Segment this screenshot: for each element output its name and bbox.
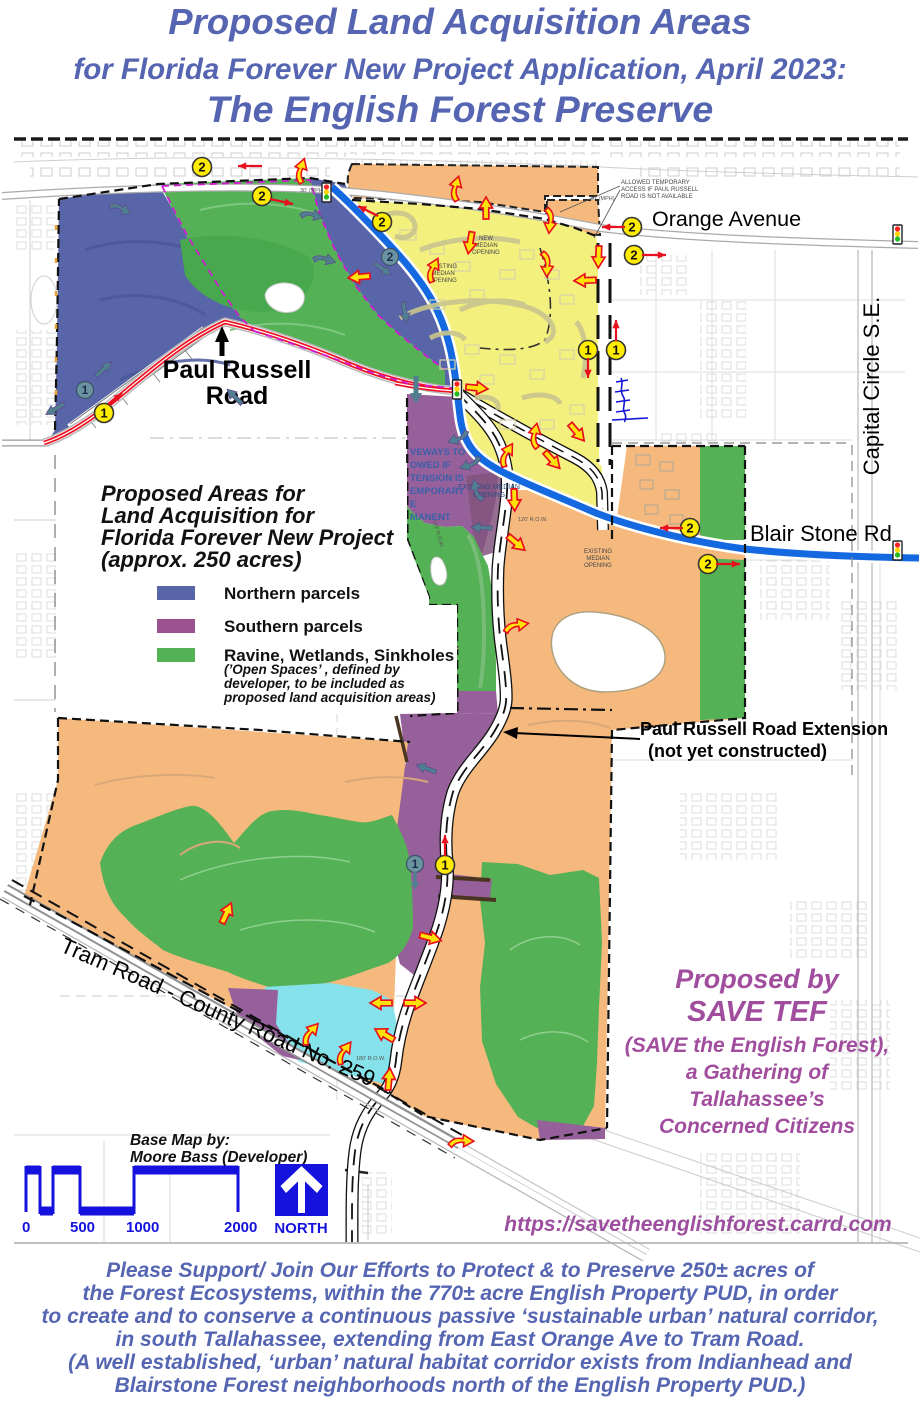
svg-text:2: 2 xyxy=(628,220,635,235)
svg-text:2: 2 xyxy=(258,189,265,204)
svg-text:1: 1 xyxy=(584,343,591,358)
svg-text:1: 1 xyxy=(612,343,619,358)
svg-text:a Gathering of: a Gathering of xyxy=(686,1061,830,1084)
svg-text:(approx. 250 acres): (approx. 250 acres) xyxy=(101,547,302,572)
svg-text:ACCESS IF PAUL RUSSELL: ACCESS IF PAUL RUSSELL xyxy=(621,187,699,193)
svg-text:MEDIAN: MEDIAN xyxy=(586,556,609,562)
svg-text:Concerned Citizens: Concerned Citizens xyxy=(659,1115,855,1138)
svg-text:Southern parcels: Southern parcels xyxy=(224,617,363,636)
svg-text:OPENING: OPENING xyxy=(472,250,500,256)
svg-text:OWED IF: OWED IF xyxy=(410,460,451,471)
svg-text:1: 1 xyxy=(82,383,89,397)
svg-text:2: 2 xyxy=(630,248,637,263)
svg-text:1: 1 xyxy=(441,858,448,873)
svg-text:TENSION IS: TENSION IS xyxy=(410,473,464,484)
svg-text:Blair Stone Rd: Blair Stone Rd xyxy=(750,521,892,546)
svg-text:(not yet constructed): (not yet constructed) xyxy=(648,741,827,761)
svg-text:120' R.O.W.: 120' R.O.W. xyxy=(518,517,548,523)
svg-text:developer, to be included as: developer, to be included as xyxy=(224,676,405,691)
svg-text:Northern parcels: Northern parcels xyxy=(224,584,360,603)
svg-text:180' R.O.W.: 180' R.O.W. xyxy=(356,1056,386,1062)
svg-text:ROAD IS NOT AVAILABLE: ROAD IS NOT AVAILABLE xyxy=(621,194,693,200)
svg-text:Capital Circle S.E.: Capital Circle S.E. xyxy=(859,297,884,476)
svg-text:2: 2 xyxy=(686,521,693,536)
svg-text:1000: 1000 xyxy=(126,1219,159,1236)
svg-text:SAVE TEF: SAVE TEF xyxy=(687,996,828,1028)
svg-text:MEDIAN: MEDIAN xyxy=(431,271,454,277)
svg-text:NORTH: NORTH xyxy=(274,1220,327,1237)
svg-text:Paul Russell: Paul Russell xyxy=(163,356,312,384)
svg-text:2000: 2000 xyxy=(224,1219,257,1236)
svg-text:Proposed by: Proposed by xyxy=(675,964,841,994)
svg-text:VEWAYS TO: VEWAYS TO xyxy=(410,447,465,458)
svg-text:https://savetheenglishforest.c: https://savetheenglishforest.carrd.com xyxy=(504,1213,891,1236)
svg-text:2: 2 xyxy=(387,250,394,264)
svg-text:2: 2 xyxy=(198,160,205,175)
svg-text:500: 500 xyxy=(70,1219,95,1236)
svg-text:NEW: NEW xyxy=(479,236,493,242)
svg-text:Base Map by:: Base Map by: xyxy=(130,1132,230,1149)
svg-text:Tallahassee’s: Tallahassee’s xyxy=(689,1088,824,1111)
svg-text:MANENT: MANENT xyxy=(410,512,451,523)
svg-text:0: 0 xyxy=(22,1219,30,1236)
svg-text:(SAVE the English Forest),: (SAVE the English Forest), xyxy=(625,1034,889,1057)
svg-text:(’Open Spaces’ , defined by: (’Open Spaces’ , defined by xyxy=(224,662,401,677)
svg-text:30' (MPH): 30' (MPH) xyxy=(300,188,325,194)
svg-text:EMPORARY: EMPORARY xyxy=(410,486,465,497)
svg-text:OPENING: OPENING xyxy=(584,563,612,569)
svg-text:ALLOWED TEMPORARY: ALLOWED TEMPORARY xyxy=(621,180,690,186)
svg-text:proposed land acquisition area: proposed land acquisition areas) xyxy=(223,690,436,705)
svg-text:EXISTING: EXISTING xyxy=(584,549,612,555)
svg-text:2: 2 xyxy=(378,215,385,230)
svg-text:Moore Bass (Developer): Moore Bass (Developer) xyxy=(130,1149,307,1166)
svg-text:1: 1 xyxy=(100,406,107,421)
svg-text:Paul Russell Road Extension: Paul Russell Road Extension xyxy=(640,719,888,739)
svg-text:30' (MPH): 30' (MPH) xyxy=(590,196,615,202)
svg-text:Orange Avenue: Orange Avenue xyxy=(652,207,801,231)
svg-text:E: E xyxy=(410,499,416,510)
svg-text:2: 2 xyxy=(704,557,711,572)
svg-text:1: 1 xyxy=(412,857,419,871)
svg-text:MEDIAN: MEDIAN xyxy=(474,243,497,249)
